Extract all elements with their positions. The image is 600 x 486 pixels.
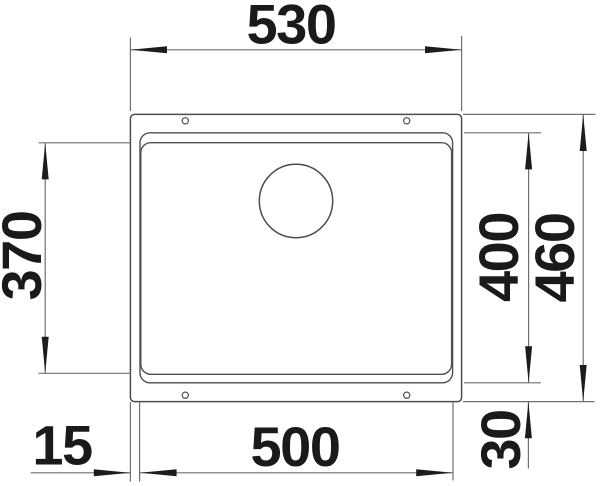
- svg-text:460: 460: [523, 214, 586, 303]
- svg-text:500: 500: [251, 415, 340, 478]
- svg-text:530: 530: [247, 0, 336, 55]
- svg-text:30: 30: [469, 410, 532, 469]
- svg-text:400: 400: [467, 213, 530, 302]
- svg-text:15: 15: [32, 414, 92, 477]
- svg-text:370: 370: [0, 212, 53, 301]
